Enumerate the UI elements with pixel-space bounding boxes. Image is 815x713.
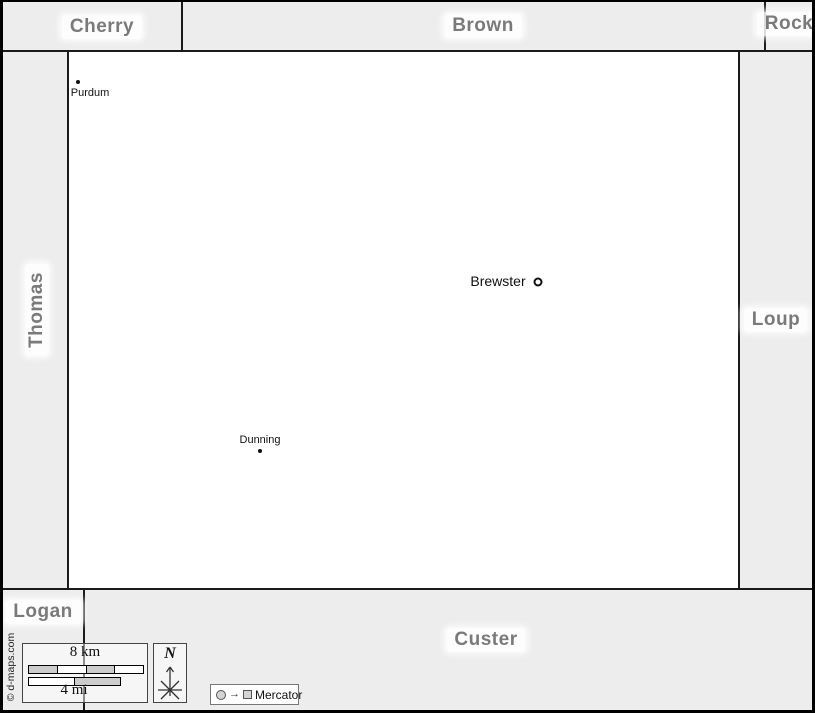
frame-border (0, 0, 815, 2)
scale-bar-km (28, 665, 144, 674)
projection-label: Mercator (255, 688, 302, 702)
compass-box: N (153, 643, 187, 703)
map-canvas (68, 51, 739, 589)
county-boundary-line-south (2, 588, 813, 590)
north-label: N (154, 645, 186, 663)
frame-border (0, 0, 3, 713)
county-boundary-line-west (67, 51, 69, 589)
county-boundary-line-east (738, 51, 740, 589)
projection-legend: → Mercator (210, 684, 299, 705)
scale-bar: 8 km 4 mi (22, 643, 148, 703)
scale-mi-label: 4 mi (60, 682, 87, 699)
scale-segment (29, 666, 58, 673)
scale-segment (87, 666, 116, 673)
cherry-brown-boundary-line (181, 2, 183, 50)
region-label-thomas: Thomas (25, 264, 49, 356)
county-boundary-line-north (2, 50, 813, 52)
town-dot-icon (76, 80, 80, 84)
globe-circle-icon (216, 690, 226, 700)
map-figure: Cherry Brown Rock Thomas Loup Logan Cust… (0, 0, 815, 713)
scale-segment (58, 666, 87, 673)
county-seat-ring-icon (534, 278, 543, 287)
projected-square-icon (243, 690, 252, 699)
region-label-custer: Custer (446, 628, 525, 652)
scale-km-label: 8 km (70, 644, 100, 661)
region-label-loup: Loup (744, 308, 808, 332)
town-label-dunning: Dunning (240, 434, 281, 446)
region-label-logan: Logan (5, 600, 81, 624)
arrow-right-icon: → (229, 689, 240, 700)
north-arrow-icon (156, 663, 184, 701)
scale-segment (115, 666, 143, 673)
region-label-cherry: Cherry (62, 15, 142, 39)
town-label-brewster: Brewster (470, 273, 525, 289)
town-label-purdum: Purdum (71, 87, 110, 99)
region-label-brown: Brown (444, 14, 522, 38)
region-label-rock: Rock (757, 12, 815, 36)
town-dot-icon (258, 449, 262, 453)
credit-text: © d-maps.com (5, 630, 17, 704)
